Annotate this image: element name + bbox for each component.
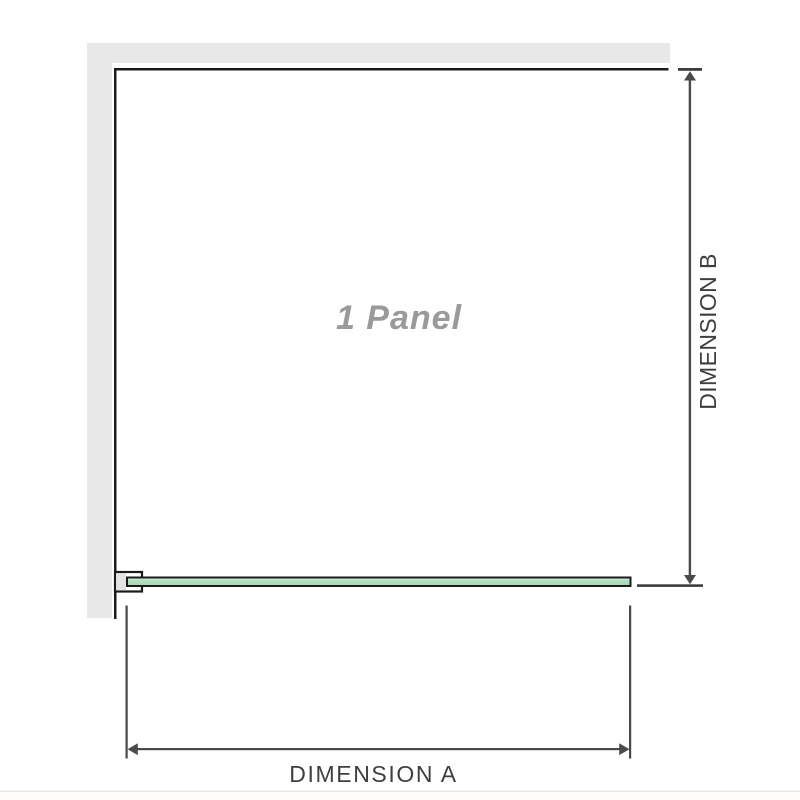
svg-text:DIMENSION B: DIMENSION B bbox=[695, 253, 721, 409]
svg-text:1 Panel: 1 Panel bbox=[336, 299, 463, 337]
svg-text:DIMENSION A: DIMENSION A bbox=[289, 761, 457, 787]
